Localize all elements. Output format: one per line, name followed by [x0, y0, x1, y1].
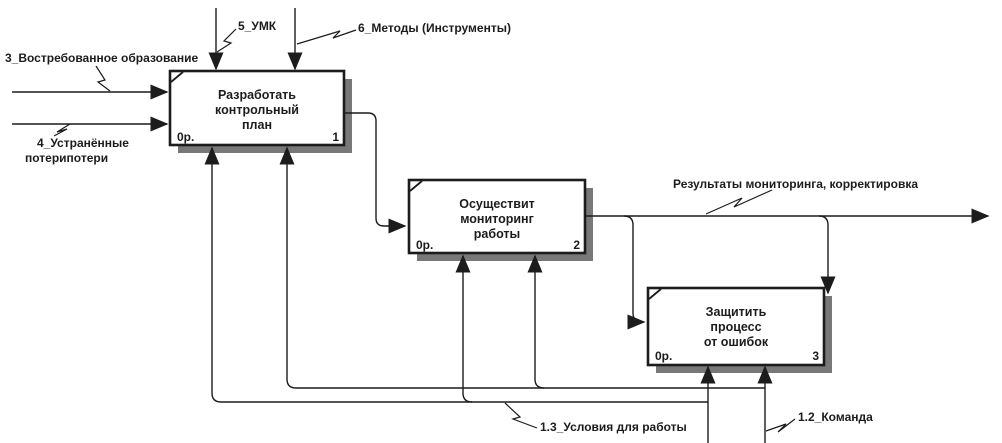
leader-mechanism-2	[766, 419, 795, 432]
activity-1-title-line2: контрольный	[215, 103, 299, 117]
label-output-monitoring-results: Результаты мониторинга, корректировка	[673, 177, 918, 191]
activity-box-3: Защитить процесс от ошибок 0р. 3	[648, 288, 824, 365]
activity-3-title-line1: Защитить	[706, 305, 767, 319]
leader-input-2	[54, 124, 70, 136]
activity-1-title-line3: план	[242, 118, 272, 132]
activity-1-title-line1: Разработать	[218, 88, 296, 102]
activity-3-number: 3	[812, 349, 819, 363]
activity-3-title-line2: процесс	[710, 320, 761, 334]
branch-to-box3-input	[624, 216, 644, 322]
label-mechanism-team: 1.2_Команда	[798, 410, 873, 424]
label-input-demanded-education: 3_Востребованное образование	[5, 51, 198, 65]
activity-box-1: Разработать контрольный план 0р. 1	[170, 71, 344, 145]
leader-control-1	[217, 29, 236, 52]
leader-output	[706, 190, 772, 214]
branch-to-box3-control	[819, 216, 828, 293]
activity-1-number: 1	[332, 130, 339, 144]
connector-box1-to-box2	[345, 113, 405, 226]
leader-mechanism-1	[505, 403, 537, 428]
activity-2-title-line3: работы	[474, 227, 520, 241]
label-input-eliminated-losses-line2: потерипотери	[25, 151, 108, 165]
label-mechanism-work-conditions: 1.3_Условия для работы	[540, 420, 687, 434]
leader-control-2	[297, 30, 356, 44]
activity-2-cost: 0р.	[416, 238, 433, 252]
leader-input-1	[96, 66, 110, 91]
label-control-umk: 5_УМК	[238, 19, 277, 33]
activity-3-cost: 0р.	[655, 349, 672, 363]
label-control-methods: 6_Методы (Инструменты)	[358, 21, 511, 35]
activity-box-2: Осуществит мониторинг работы 0р. 2	[409, 180, 585, 253]
label-input-eliminated-losses-line1: 4_Устранённые	[37, 136, 129, 150]
activity-1-cost: 0р.	[177, 130, 194, 144]
idef0-diagram: Разработать контрольный план 0р. 1 Осуще…	[0, 0, 1002, 443]
activity-2-title-line2: мониторинг	[460, 212, 534, 226]
activity-2-title-line1: Осуществит	[459, 197, 535, 211]
activity-3-title-line3: от ошибок	[704, 335, 769, 349]
activity-2-number: 2	[573, 238, 580, 252]
